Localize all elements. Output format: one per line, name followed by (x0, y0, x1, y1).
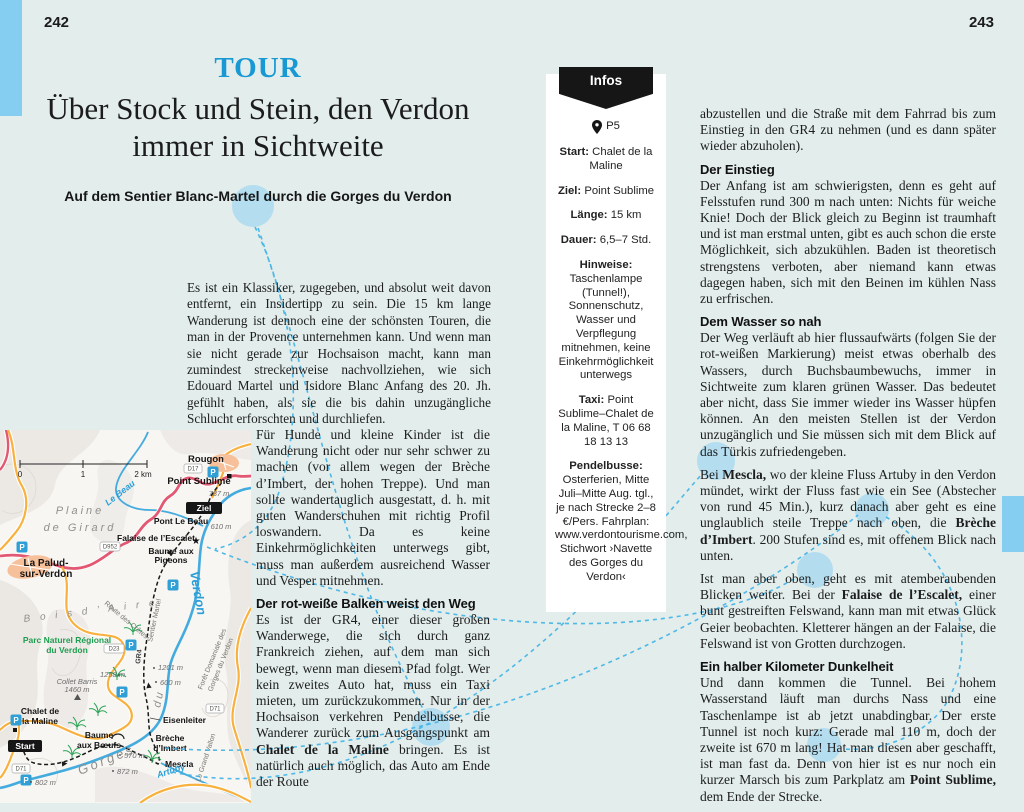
field-value: 6,5–7 Std. (600, 234, 652, 246)
paragraph: Es ist der GR4, einer dieser großen Wand… (256, 612, 490, 790)
map-label-la-palud: La Palud- (23, 558, 68, 569)
left-column: Für Hunde und kleine Kinder ist die Wand… (256, 427, 490, 797)
paragraph: Es ist ein Klassiker, zugegeben, und abs… (187, 280, 491, 428)
field-label: Dauer: (561, 234, 597, 246)
field-value: Osterferien, Mitte Juli–Mitte Aug. tgl.,… (555, 474, 687, 583)
map-label-parc: Parc Naturel Régional (23, 635, 111, 645)
infobox-field: Pendelbusse: Osterferien, Mitte Juli–Mit… (555, 460, 657, 584)
infobox-field: Länge: 15 km (555, 209, 657, 223)
right-edge-tab (1002, 496, 1024, 552)
page-title: Über Stock und Stein, den Verdon immer i… (28, 90, 488, 164)
kicker: TOUR (28, 52, 488, 85)
map-label-breche: Brèche (156, 733, 185, 743)
infobox: Infos P5 Start: Chalet de la Maline Ziel… (546, 74, 666, 612)
road-badge-d71: D71 (209, 707, 221, 713)
map-label-elev-1258: 1258 m (100, 670, 125, 679)
field-value: Chalet de la Maline (589, 146, 652, 172)
map-label-chalet: Chalet de (21, 706, 60, 716)
field-label: Pendelbusse: (569, 460, 642, 472)
title-line-1: Über Stock und Stein, den Verdon (46, 91, 469, 126)
title-line-2: immer in Sichtweite (132, 128, 383, 163)
building-icon (13, 728, 17, 732)
start-badge-label: Start (15, 741, 35, 751)
field-value: Point Sublime (584, 185, 654, 197)
paragraph: Der Weg verläuft ab hier flussaufwärts (… (700, 330, 996, 460)
map-label-baume-boeufs: Baume (85, 730, 114, 740)
section-heading: Dem Wasser so nah (700, 314, 996, 329)
map-label-elev-872: 872 m (117, 767, 138, 776)
infobox-field: Dauer: 6,5–7 Std. (555, 234, 657, 248)
parking-icon (17, 542, 28, 553)
section-heading: Der Einstieg (700, 162, 996, 177)
field-value: 15 km (611, 209, 642, 221)
road-badge-d17: D17 (187, 467, 199, 473)
parking-icon (21, 775, 32, 786)
tour-header: TOUR Über Stock und Stein, den Verdon im… (28, 52, 488, 204)
map-pin-icon (592, 120, 602, 134)
map-label-falaise: Falaise de l’Escalet (117, 533, 195, 543)
map-label-plaine: de Girard (44, 522, 117, 534)
road-badge-d952: D952 (103, 545, 118, 551)
field-label: Ziel: (558, 185, 581, 197)
paragraph: Der Anfang ist am schwierigsten, denn es… (700, 178, 996, 308)
map-label-elev-802: 802 m (35, 778, 56, 787)
hiking-map: P (0, 430, 251, 803)
parking-icon (117, 687, 128, 698)
infobox-field: Taxi: Point Sublime–Chalet de la Maline,… (555, 394, 657, 449)
map-label-elev-600: 600 m (160, 678, 181, 687)
field-value: Point Sublime–Chalet de la Maline, T 06 … (558, 394, 653, 447)
right-column: abzustellen und die Straße mit dem Fahrr… (700, 106, 996, 812)
field-label: Hinweise: (580, 259, 633, 271)
field-label: Start: (560, 146, 590, 158)
road-badge-d71: D71 (15, 767, 27, 773)
paragraph: Und dann kommen die Tunnel. Bei hohem Wa… (700, 675, 996, 805)
field-label: Länge: (571, 209, 608, 221)
infobox-location-row: P5 (555, 120, 657, 134)
parking-icon (168, 580, 179, 591)
page-number-left: 242 (44, 14, 69, 31)
infobox-field: Hinweise: Taschenlampe (Tunnel!), Sonnen… (555, 259, 657, 383)
infobox-field: Start: Chalet de la Maline (555, 146, 657, 174)
map-label-rougon: Rougon (188, 454, 224, 465)
infobox-title: Infos (590, 73, 622, 88)
scale-label: 0 (18, 470, 23, 479)
subtitle: Auf dem Sentier Blanc-Martel durch die G… (28, 188, 488, 204)
page-number-right: 243 (969, 14, 994, 31)
book-spread: { "page": { "left_number": "242", "right… (0, 0, 1024, 803)
map-label-elev-787: 787 m (209, 489, 230, 498)
section-heading: Der rot-weiße Balken weist den Weg (256, 596, 490, 611)
infobox-location: P5 (606, 120, 620, 134)
field-value: Taschenlampe (Tunnel!), Sonnenschutz, Wa… (559, 273, 654, 382)
map-label-chalet: la Maline (22, 716, 58, 726)
infobox-field: Ziel: Point Sublime (555, 185, 657, 199)
infobox-ribbon: Infos (559, 67, 653, 109)
left-edge-tab (0, 0, 22, 116)
map-label-collet-elev: 1460 m (64, 685, 89, 694)
map-label-la-palud: sur-Verdon (20, 569, 73, 580)
section-heading: Ein halber Kilometer Dunkelheit (700, 659, 996, 674)
scale-label: 1 (81, 470, 86, 479)
parking-icon (126, 640, 137, 651)
paragraph: Ist man aber oben, geht es mit atemberau… (700, 571, 996, 652)
map-label-parc: du Verdon (46, 645, 88, 655)
field-label: Taxi: (579, 394, 605, 406)
map-label-eisenleiter: Eisenleiter (163, 715, 207, 725)
scale-label: 2 km (134, 470, 152, 479)
map-label-elev-610: 610 m (211, 522, 232, 531)
map-label-pont-le-beau: Pont Le Beau (154, 516, 208, 526)
road-badge-d23: D23 (108, 647, 120, 653)
map-label-baume-pigeons: Pigeons (154, 555, 187, 565)
paragraph: abzustellen und die Straße mit dem Fahrr… (700, 106, 996, 155)
map-label-elev-1201: 1201 m (158, 663, 183, 672)
paragraph: Bei Mescla, wo der kleine Fluss Artuby i… (700, 467, 996, 564)
ziel-badge-label: Ziel (197, 503, 212, 513)
map-label-breche: d’Imbert (153, 743, 187, 753)
parking-icon (11, 715, 22, 726)
intro-column: Es ist ein Klassiker, zugegeben, und abs… (187, 280, 491, 435)
map-label-point-sublime: Point Sublime (167, 476, 230, 487)
paragraph: Für Hunde und kleine Kinder ist die Wand… (256, 427, 490, 589)
map-label-plaine: Plaine (56, 505, 105, 517)
